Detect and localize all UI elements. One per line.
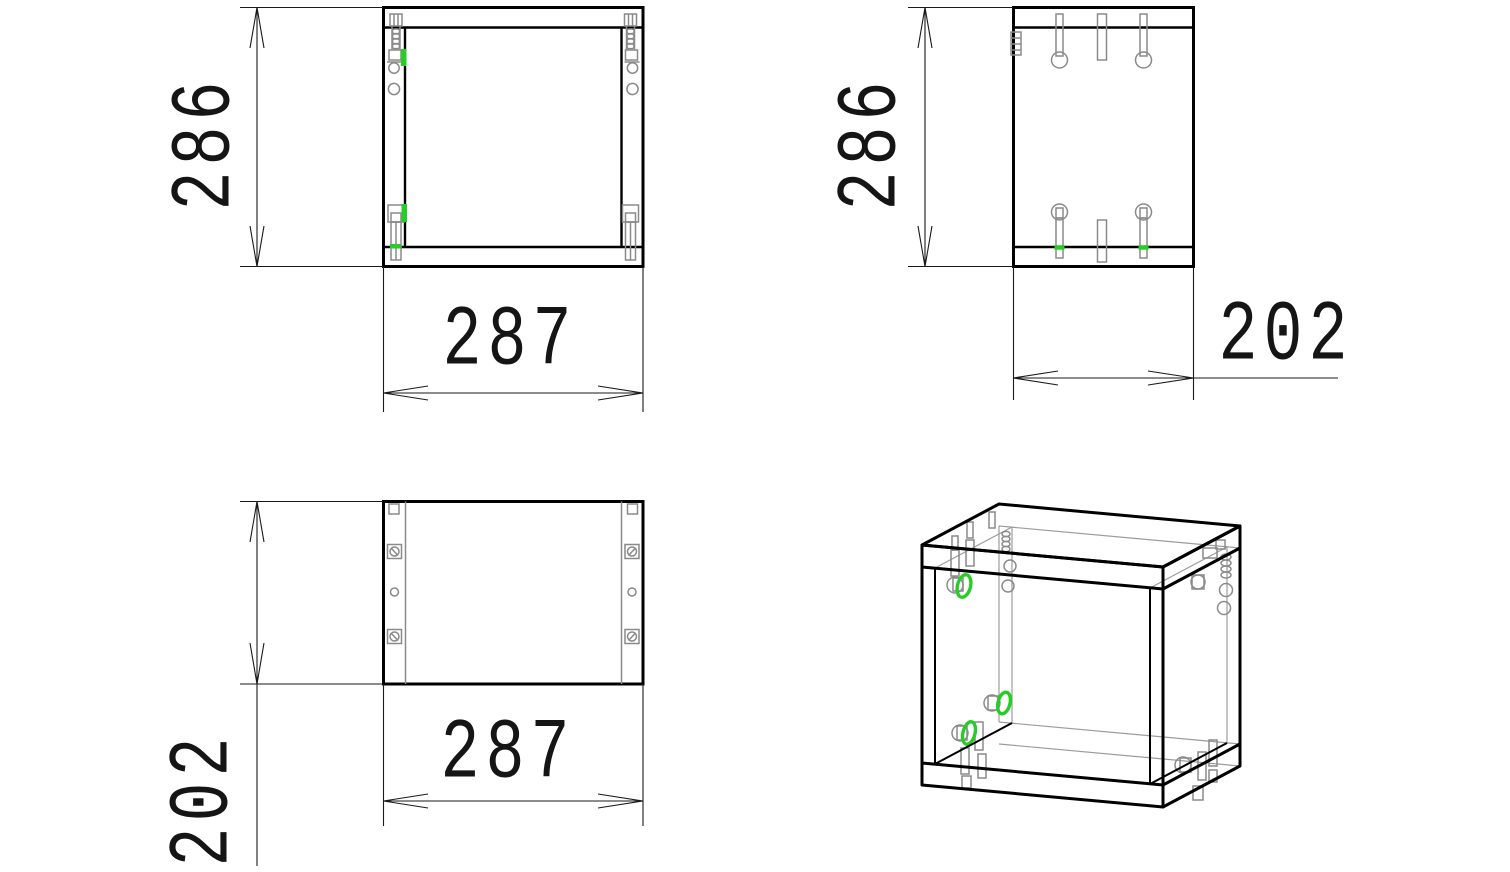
dimension-depth-side: 202	[1014, 267, 1354, 400]
cam-lock-icon	[388, 504, 402, 644]
drawing-sheet: 286 287	[0, 0, 1510, 872]
dowel-icon	[1052, 14, 1152, 68]
side-view	[1011, 8, 1194, 267]
dimension-width-top: 287	[384, 684, 644, 826]
front-view	[384, 8, 644, 267]
dim-label: 287	[440, 706, 575, 803]
screw-icon	[387, 14, 402, 95]
dimension-depth-top: 202	[156, 502, 383, 867]
dim-label: 286	[158, 75, 255, 210]
iso-hidden-edges	[935, 526, 1240, 784]
dim-label: 286	[824, 75, 921, 210]
iso-hardware	[947, 512, 1233, 800]
top-view	[384, 502, 644, 685]
isometric-view	[922, 504, 1240, 807]
dimension-height-front: 286	[158, 8, 383, 267]
dowel-icon	[1052, 204, 1152, 262]
dim-label: 202	[156, 731, 253, 866]
cam-bolt-icon	[623, 205, 639, 260]
screw-icon	[625, 14, 640, 95]
dim-label: 287	[442, 293, 577, 390]
dimension-width-front: 287	[384, 267, 644, 412]
highlight-rings	[955, 573, 1013, 745]
cam-lock-icon	[625, 504, 639, 644]
cad-drawing: 286 287	[0, 0, 1510, 872]
dim-label: 202	[1218, 288, 1353, 385]
dimension-height-side: 286	[824, 8, 1013, 267]
